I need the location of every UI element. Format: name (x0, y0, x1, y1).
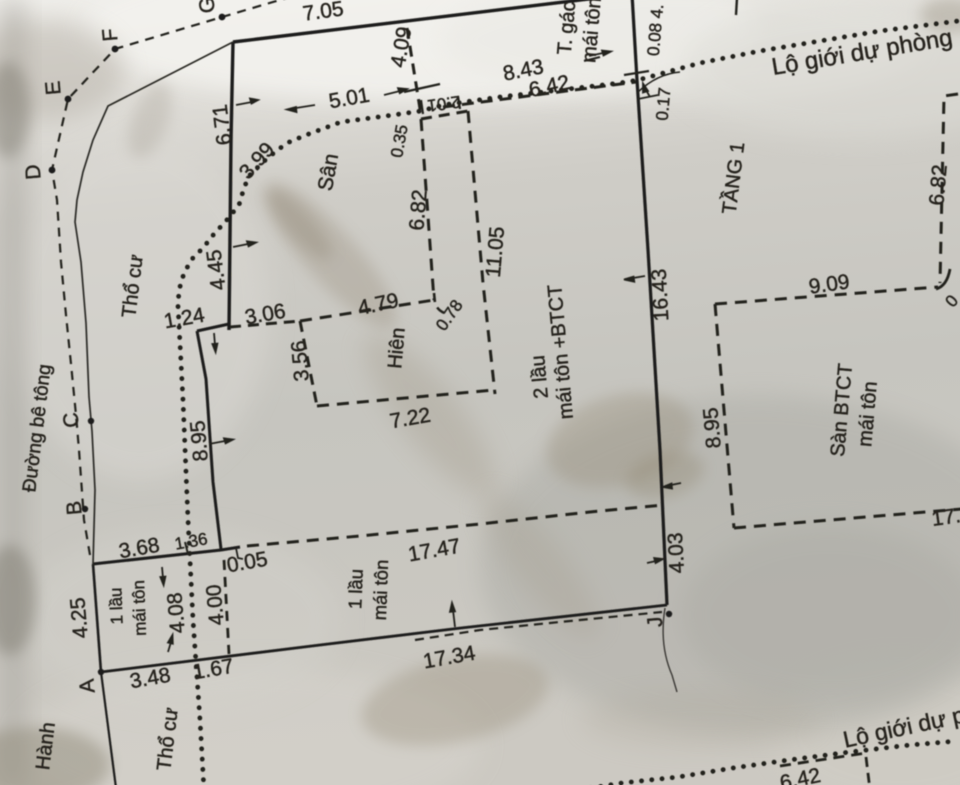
svg-text:2 lầu: 2 lầu (527, 354, 553, 399)
svg-text:4.03: 4.03 (664, 532, 689, 574)
svg-text:17.: 17. (930, 504, 960, 531)
svg-text:11.05: 11.05 (482, 226, 509, 279)
svg-text:1 lầu: 1 lầu (344, 569, 366, 610)
svg-text:F: F (98, 28, 122, 43)
svg-text:A: A (75, 678, 99, 694)
svg-text:8.95: 8.95 (699, 407, 725, 450)
svg-text:mái tôn: mái tôn (129, 580, 150, 636)
svg-text:8.95: 8.95 (186, 420, 212, 463)
svg-text:1 lầu: 1 lầu (106, 587, 126, 625)
svg-text:4.00: 4.00 (202, 584, 228, 627)
svg-text:mái tôn: mái tôn (369, 559, 392, 620)
svg-text:4.08: 4.08 (163, 592, 189, 635)
svg-text:Hiên: Hiên (384, 327, 410, 370)
svg-text:16.43: 16.43 (648, 268, 674, 322)
svg-text:T. gác: T. gác (554, 0, 581, 55)
svg-text:D: D (21, 163, 45, 180)
svg-text:0.17: 0.17 (653, 87, 675, 122)
svg-text:3.56: 3.56 (287, 340, 313, 383)
svg-text:B: B (62, 500, 86, 516)
svg-text:6.82: 6.82 (405, 189, 431, 232)
svg-text:6.82: 6.82 (925, 164, 951, 207)
svg-text:J: J (644, 616, 668, 628)
svg-text:G: G (195, 0, 219, 14)
svg-text:C: C (59, 411, 83, 428)
svg-text:E: E (41, 80, 65, 96)
svg-text:4.25: 4.25 (66, 597, 92, 640)
